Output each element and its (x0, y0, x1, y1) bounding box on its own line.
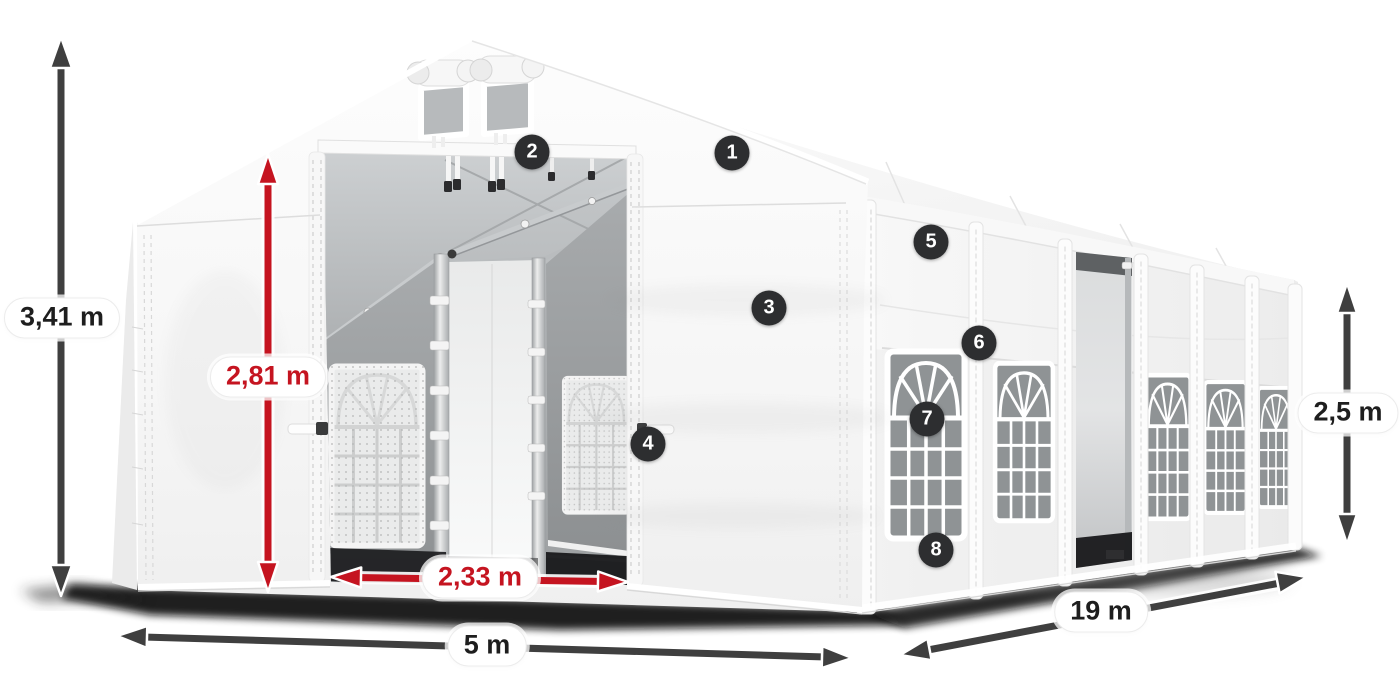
side-doorway (1076, 252, 1132, 568)
side-window-3 (1145, 375, 1190, 519)
feature-marker-7[interactable]: 7 (910, 402, 945, 437)
dimension-label-side-height: 2,5 m (1297, 392, 1398, 433)
dimension-label-width: 5 m (448, 625, 527, 666)
inner-doorway-gap (448, 260, 540, 588)
feature-marker-4[interactable]: 4 (631, 427, 666, 462)
tent-front (112, 38, 892, 614)
dimension-label-total-height: 3,41 m (4, 297, 120, 338)
inner-partition-window-right (563, 377, 630, 514)
gable-vent-right (470, 56, 544, 145)
feature-marker-1[interactable]: 1 (715, 136, 750, 171)
dimension-label-length: 19 m (1054, 591, 1148, 632)
feature-marker-2[interactable]: 2 (515, 135, 550, 170)
front-entrance-opening (320, 145, 635, 591)
feature-marker-8[interactable]: 8 (919, 533, 954, 568)
side-window-4 (1205, 382, 1246, 513)
left-door-handle (288, 422, 328, 435)
inner-partition-window-left (330, 365, 424, 547)
tent-dimension-diagram: 3,41 m 2,81 m 2,33 m 5 m 19 m 2,5 m 1 2 … (0, 0, 1400, 700)
tent-illustration (0, 0, 1400, 700)
feature-marker-3[interactable]: 3 (752, 291, 787, 326)
side-window-1 (888, 352, 965, 539)
feature-marker-6[interactable]: 6 (962, 326, 997, 361)
side-window-2 (995, 363, 1053, 520)
dimension-label-inner-height: 2,81 m (210, 356, 326, 397)
dimension-label-entrance-width: 2,33 m (422, 557, 538, 598)
tent-left-wall (112, 222, 137, 590)
feature-marker-5[interactable]: 5 (914, 225, 949, 260)
